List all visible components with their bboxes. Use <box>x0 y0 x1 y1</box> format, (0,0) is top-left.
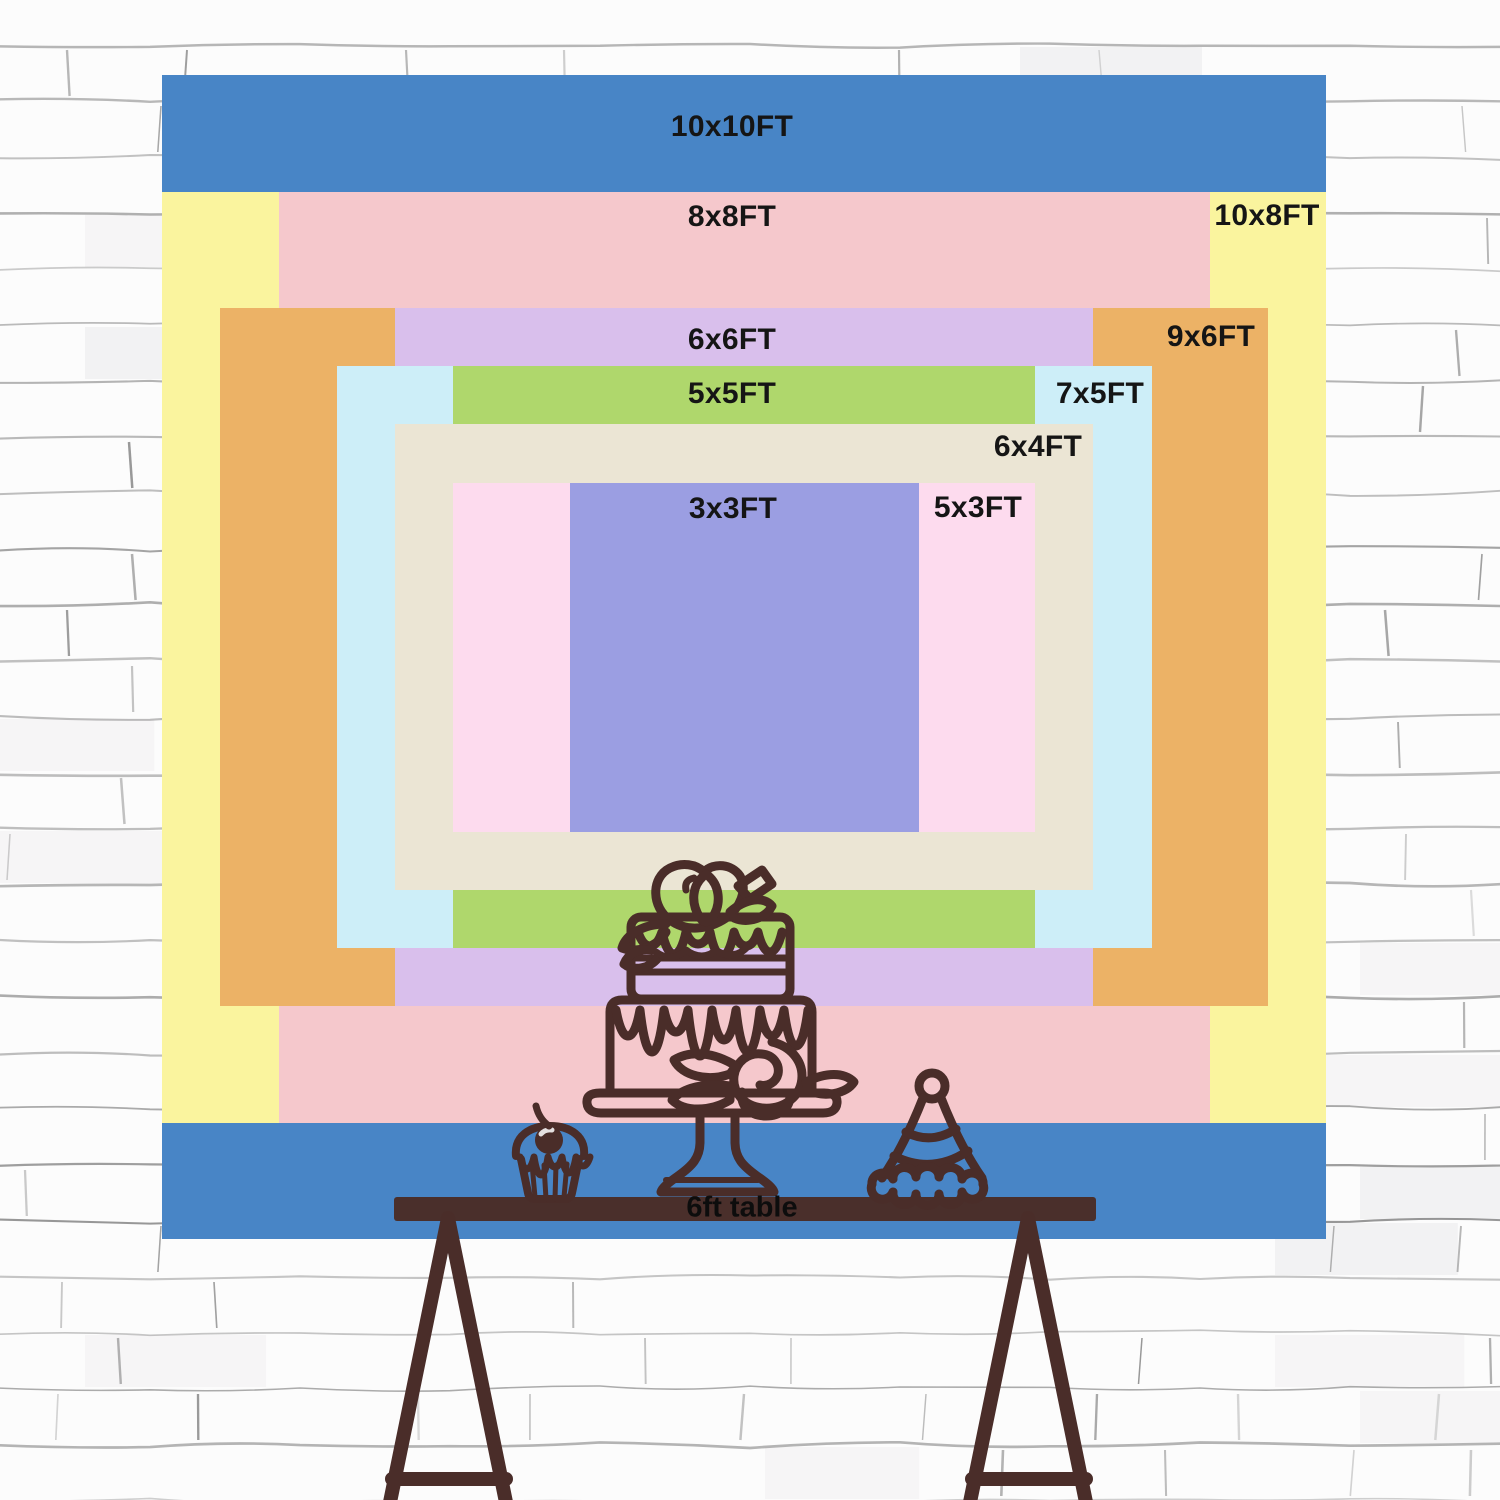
doodle-overlay <box>0 0 1500 1500</box>
table-size-label: 6ft table <box>686 1192 797 1225</box>
backdrop-size-chart-image: 10x10FT10x8FT8x8FT9x6FT6x6FT7x5FT5x5FT6x… <box>0 0 1500 1500</box>
cupcake-icon <box>516 1106 590 1199</box>
table-right-leg <box>968 1218 1088 1500</box>
table-left-leg <box>388 1218 508 1500</box>
cake-icon <box>587 865 854 1192</box>
table-legs <box>388 1218 1088 1500</box>
party-hat-icon <box>871 1073 983 1206</box>
